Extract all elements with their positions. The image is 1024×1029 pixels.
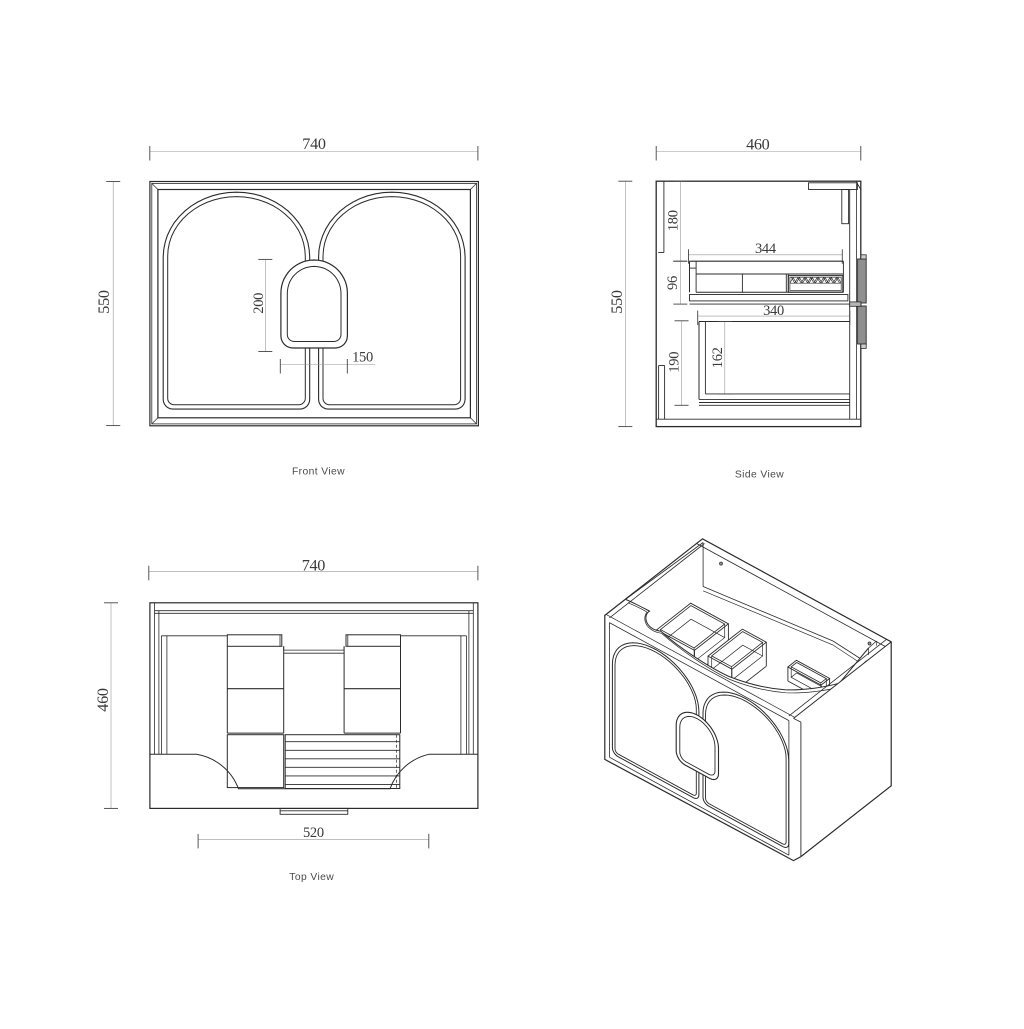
svg-text:460: 460: [94, 688, 112, 712]
svg-text:150: 150: [352, 349, 373, 365]
svg-text:Top View: Top View: [289, 872, 334, 883]
svg-text:96: 96: [665, 276, 681, 290]
svg-text:740: 740: [302, 135, 326, 153]
svg-text:740: 740: [302, 557, 326, 575]
svg-text:550: 550: [608, 290, 626, 314]
svg-text:Front View: Front View: [292, 467, 345, 478]
svg-text:520: 520: [303, 825, 324, 841]
svg-text:550: 550: [95, 290, 113, 314]
svg-text:Side View: Side View: [735, 470, 784, 481]
svg-text:190: 190: [667, 352, 683, 373]
svg-text:200: 200: [251, 293, 267, 314]
svg-text:162: 162: [710, 347, 726, 368]
svg-text:340: 340: [763, 303, 784, 319]
svg-text:180: 180: [666, 210, 682, 231]
svg-text:344: 344: [755, 241, 777, 257]
svg-text:460: 460: [746, 135, 770, 153]
